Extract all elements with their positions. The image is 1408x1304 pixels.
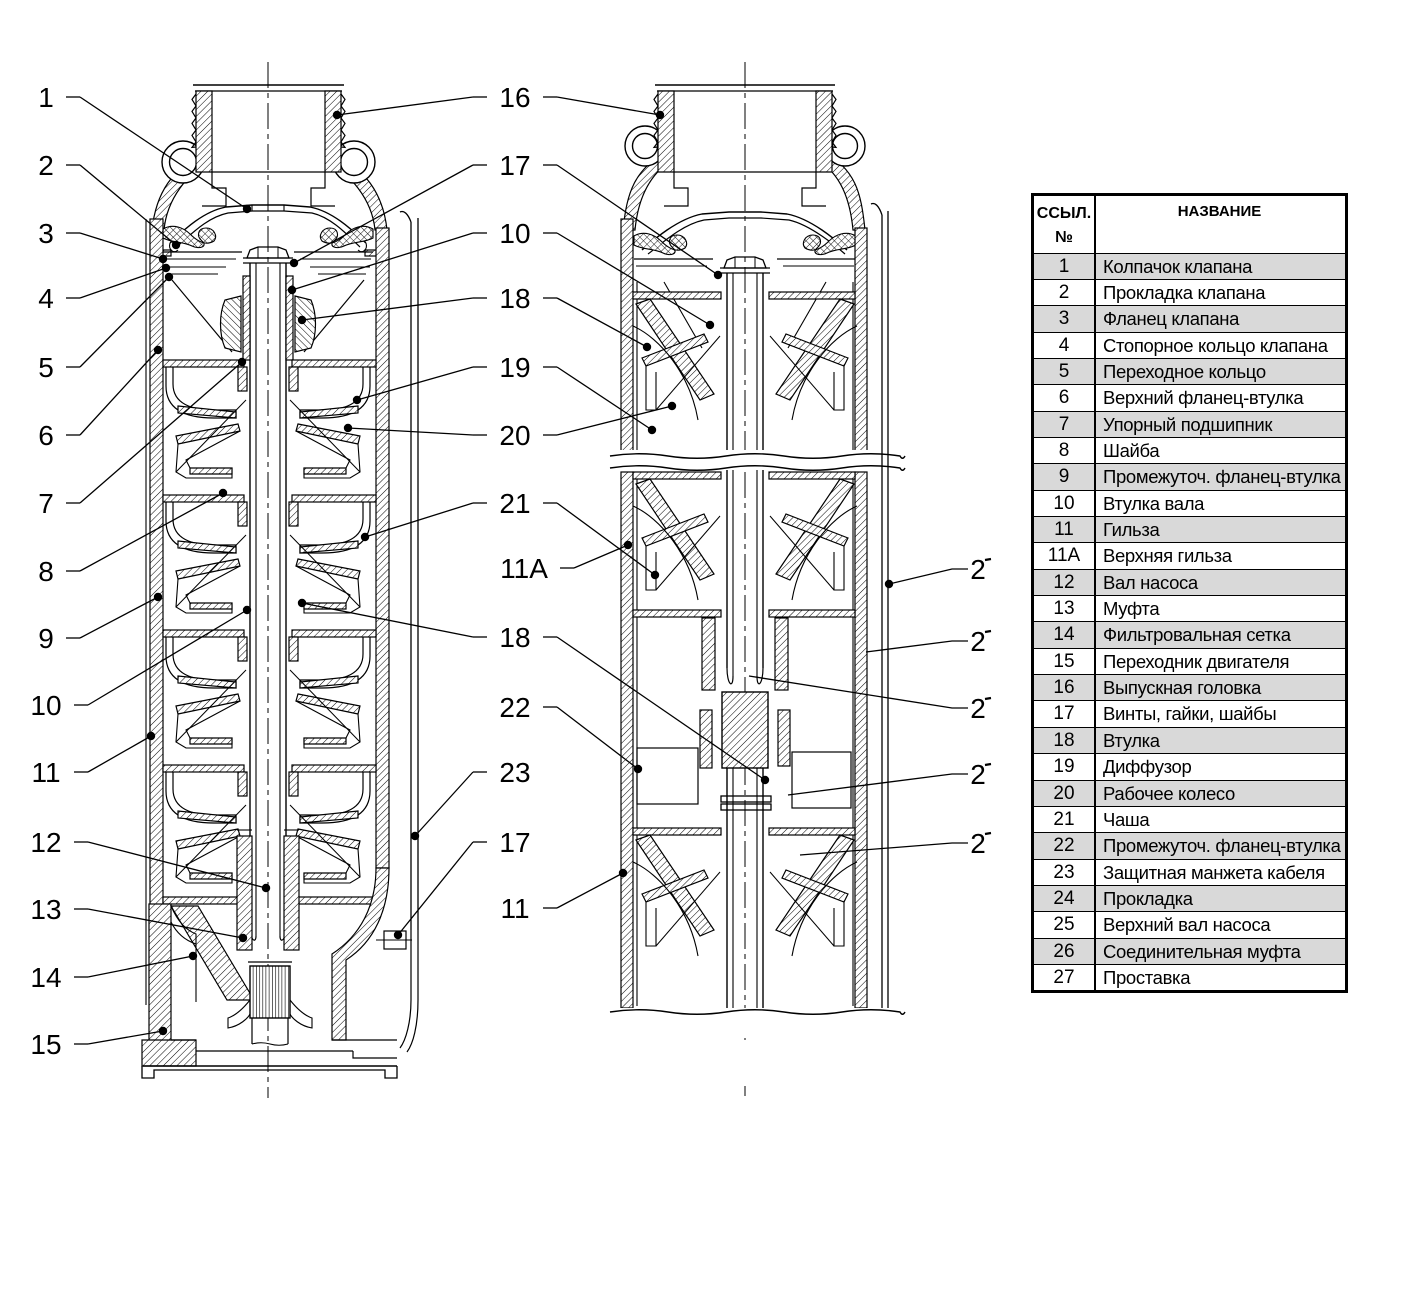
svg-text:23: 23 — [499, 757, 530, 788]
svg-text:19: 19 — [499, 352, 530, 383]
svg-text:10: 10 — [30, 690, 61, 721]
svg-text:6: 6 — [38, 420, 54, 451]
svg-text:2: 2 — [970, 828, 986, 859]
svg-text:8: 8 — [38, 556, 54, 587]
svg-text:9: 9 — [38, 623, 54, 654]
svg-text:11: 11 — [31, 757, 60, 788]
svg-text:18: 18 — [499, 283, 530, 314]
svg-text:14: 14 — [30, 962, 61, 993]
svg-text:1: 1 — [38, 82, 54, 113]
svg-text:5: 5 — [38, 352, 54, 383]
svg-text:22: 22 — [499, 692, 530, 723]
svg-text:17: 17 — [499, 827, 530, 858]
svg-text:12: 12 — [30, 827, 61, 858]
svg-text:17: 17 — [499, 150, 530, 181]
svg-text:10: 10 — [499, 218, 530, 249]
svg-text:2: 2 — [970, 626, 986, 657]
svg-text:2: 2 — [970, 693, 986, 724]
svg-text:11: 11 — [500, 893, 529, 924]
svg-text:7: 7 — [38, 488, 54, 519]
svg-text:4: 4 — [38, 283, 54, 314]
svg-text:11A: 11A — [500, 553, 548, 584]
svg-text:3: 3 — [38, 218, 54, 249]
svg-text:15: 15 — [30, 1029, 61, 1060]
svg-text:18: 18 — [499, 622, 530, 653]
svg-text:16: 16 — [499, 82, 530, 113]
svg-text:2: 2 — [970, 554, 986, 585]
svg-text:2: 2 — [38, 150, 54, 181]
svg-text:13: 13 — [30, 894, 61, 925]
svg-text:21: 21 — [499, 488, 530, 519]
svg-text:20: 20 — [499, 420, 530, 451]
svg-text:2: 2 — [970, 759, 986, 790]
